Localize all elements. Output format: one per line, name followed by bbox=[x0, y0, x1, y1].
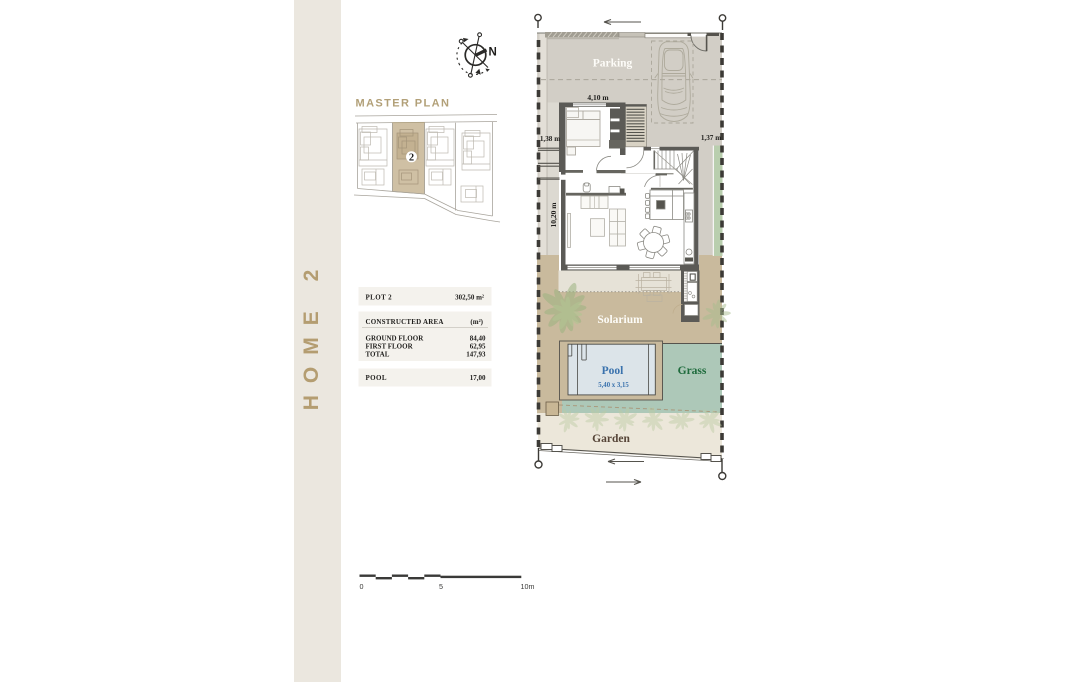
svg-text:147,93: 147,93 bbox=[466, 351, 486, 359]
svg-text:CONSTRUCTED AREA: CONSTRUCTED AREA bbox=[366, 318, 444, 326]
svg-text:5,40 x 3,15: 5,40 x 3,15 bbox=[598, 382, 629, 389]
svg-text:62,95: 62,95 bbox=[470, 343, 486, 351]
svg-text:4,10 m: 4,10 m bbox=[587, 93, 609, 102]
svg-text:N: N bbox=[489, 47, 497, 59]
svg-text:(m²): (m²) bbox=[470, 318, 483, 326]
svg-text:Grass: Grass bbox=[678, 365, 707, 377]
svg-text:HOME 2: HOME 2 bbox=[300, 258, 323, 411]
svg-text:Garden: Garden bbox=[592, 433, 630, 445]
svg-text:10m: 10m bbox=[521, 582, 535, 591]
svg-text:0: 0 bbox=[360, 582, 364, 591]
svg-text:TOTAL: TOTAL bbox=[366, 351, 390, 359]
svg-text:POOL: POOL bbox=[366, 374, 387, 382]
svg-text:GROUND FLOOR: GROUND FLOOR bbox=[366, 335, 425, 343]
svg-text:Pool: Pool bbox=[602, 365, 624, 377]
svg-text:302,50 m²: 302,50 m² bbox=[455, 294, 484, 302]
svg-text:17,00: 17,00 bbox=[470, 374, 486, 382]
svg-text:2: 2 bbox=[409, 153, 414, 164]
svg-text:MASTER PLAN: MASTER PLAN bbox=[356, 98, 451, 110]
svg-text:FIRST FLOOR: FIRST FLOOR bbox=[366, 343, 414, 351]
svg-text:Parking: Parking bbox=[593, 58, 633, 70]
svg-text:Solarium: Solarium bbox=[597, 314, 643, 326]
svg-text:1,38 m: 1,38 m bbox=[540, 135, 560, 143]
svg-text:5: 5 bbox=[439, 582, 443, 591]
svg-text:10,20 m: 10,20 m bbox=[549, 202, 558, 228]
svg-text:1,37 m: 1,37 m bbox=[701, 134, 721, 142]
svg-text:PLOT 2: PLOT 2 bbox=[366, 294, 393, 302]
svg-text:84,40: 84,40 bbox=[470, 335, 486, 343]
